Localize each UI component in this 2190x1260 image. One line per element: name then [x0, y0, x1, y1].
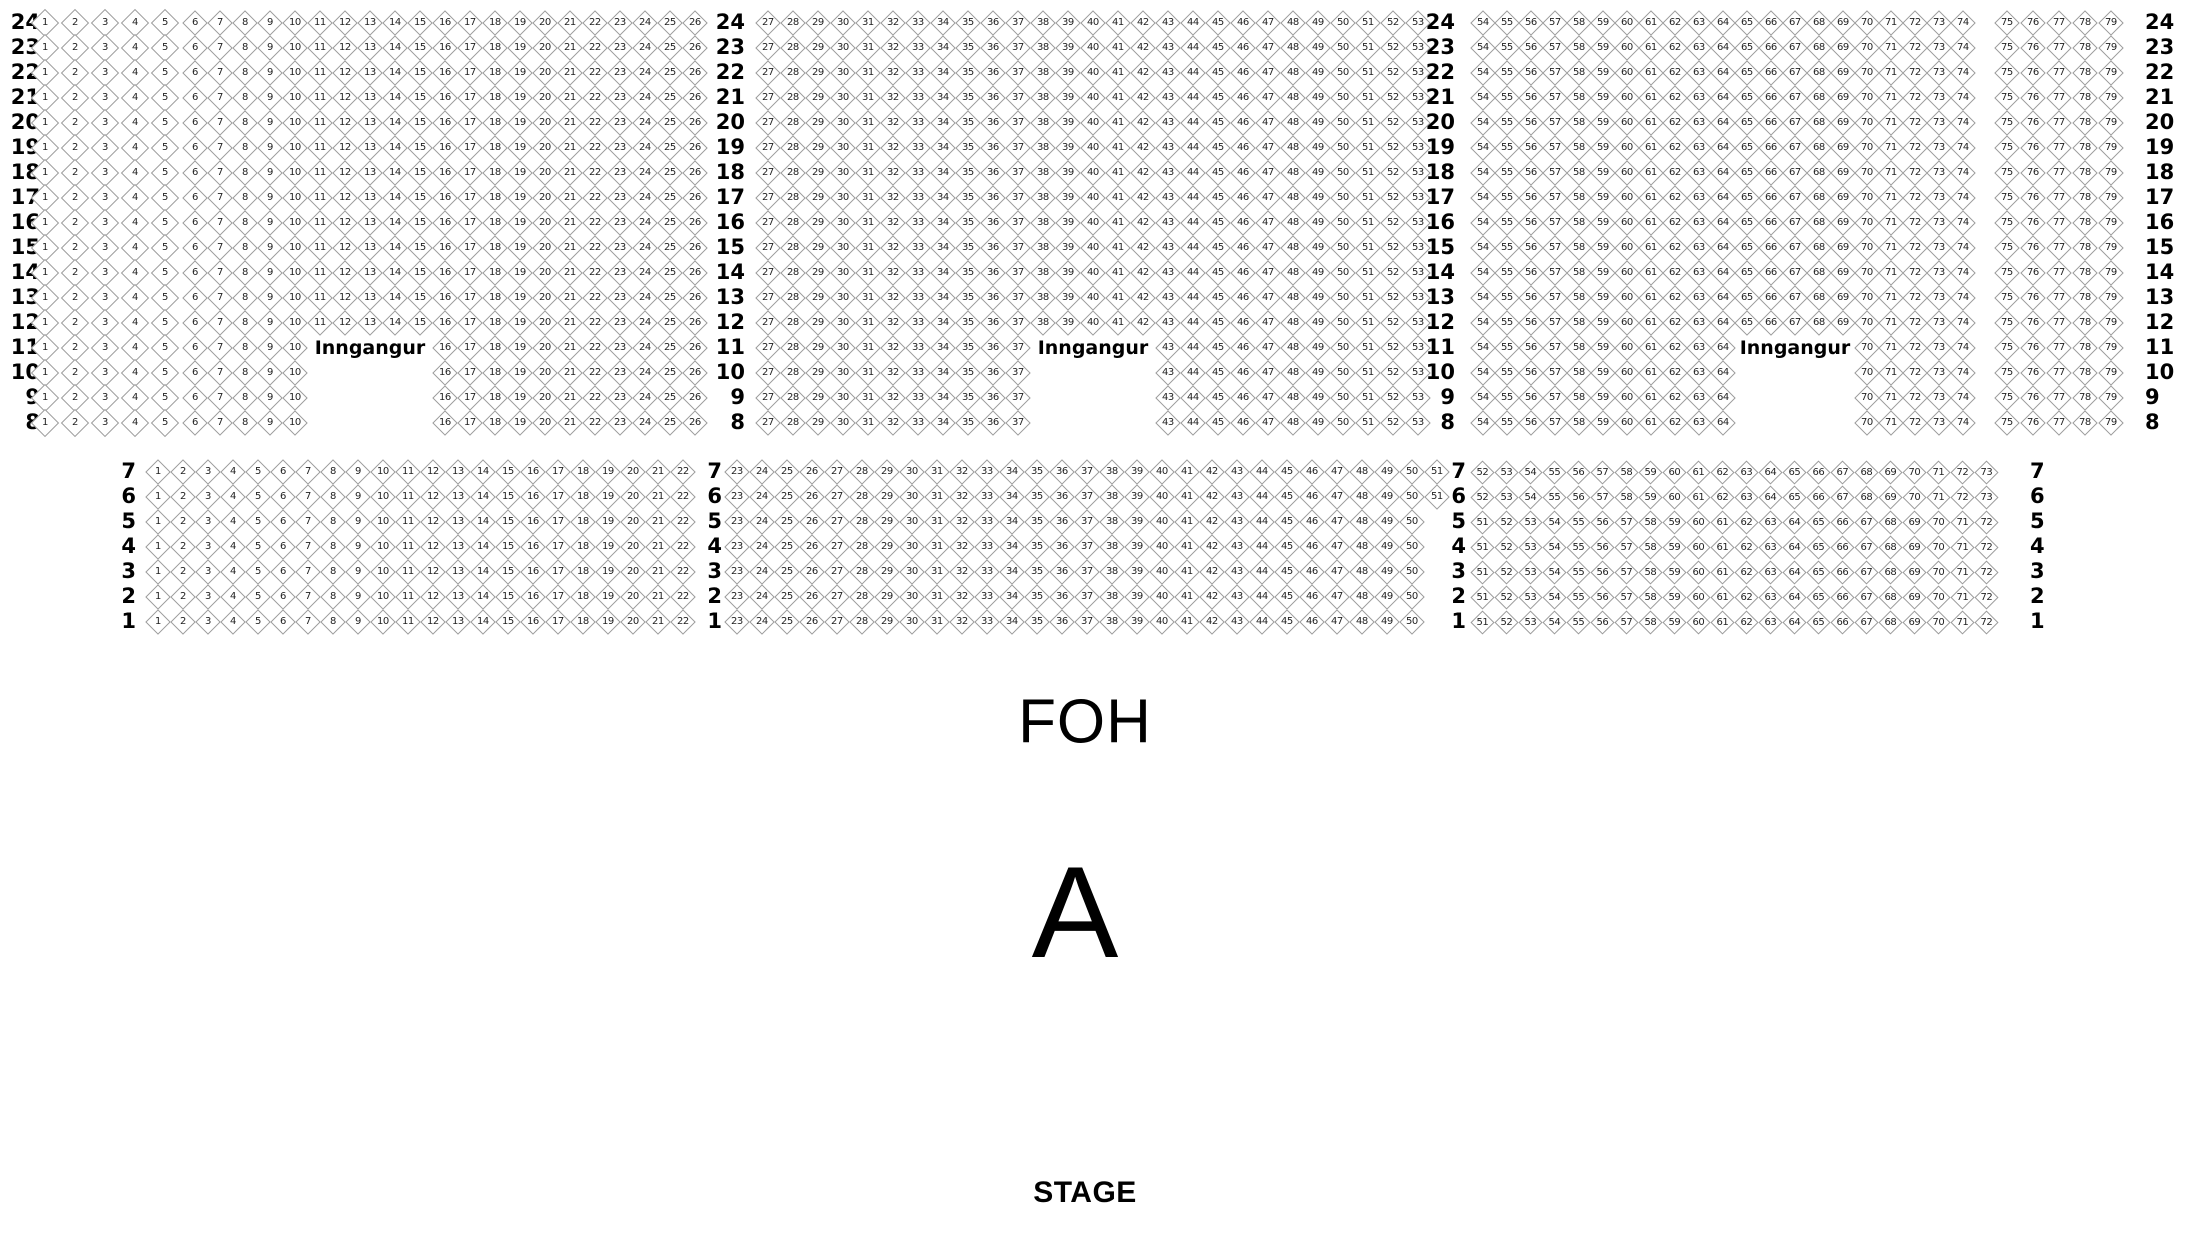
seat[interactable]: 12: [332, 10, 357, 35]
seat[interactable]: 37: [1005, 285, 1030, 310]
seat[interactable]: 40: [1080, 135, 1105, 160]
seat[interactable]: 24: [632, 335, 657, 360]
seat[interactable]: 10: [282, 260, 307, 285]
seat[interactable]: 31: [855, 260, 880, 285]
seat[interactable]: 20: [532, 335, 557, 360]
seat[interactable]: 33: [905, 85, 930, 110]
seat[interactable]: 1: [145, 609, 170, 634]
seat[interactable]: 40: [1149, 534, 1174, 559]
seat[interactable]: 29: [805, 110, 830, 135]
seat[interactable]: 9: [257, 335, 282, 360]
seat[interactable]: 74: [1950, 385, 1975, 410]
seat[interactable]: 38: [1030, 85, 1055, 110]
seat[interactable]: 17: [545, 534, 570, 559]
seat[interactable]: 19: [507, 285, 532, 310]
seat[interactable]: 67: [1830, 460, 1854, 484]
seat[interactable]: 22: [582, 360, 607, 385]
seat[interactable]: 19: [507, 10, 532, 35]
seat[interactable]: 26: [799, 484, 824, 509]
seat[interactable]: 36: [980, 360, 1005, 385]
seat[interactable]: 78: [2072, 10, 2097, 35]
seat[interactable]: 44: [1180, 10, 1205, 35]
seat[interactable]: 42: [1199, 534, 1224, 559]
seat[interactable]: 55: [1494, 210, 1519, 235]
seat[interactable]: 45: [1205, 160, 1230, 185]
seat[interactable]: 56: [1518, 310, 1543, 335]
seat[interactable]: 73: [1926, 210, 1951, 235]
seat[interactable]: 68: [1806, 285, 1831, 310]
seat[interactable]: 16: [520, 609, 545, 634]
seat[interactable]: 52: [1494, 610, 1518, 634]
seat[interactable]: 7: [207, 410, 232, 435]
seat[interactable]: 39: [1055, 160, 1080, 185]
seat[interactable]: 52: [1494, 510, 1518, 534]
seat[interactable]: 76: [2020, 135, 2045, 160]
seat[interactable]: 36: [980, 35, 1005, 60]
seat[interactable]: 69: [1830, 235, 1855, 260]
seat[interactable]: 59: [1590, 310, 1615, 335]
seat[interactable]: 36: [980, 160, 1005, 185]
seat[interactable]: 68: [1806, 310, 1831, 335]
seat[interactable]: 6: [182, 110, 207, 135]
seat[interactable]: 44: [1249, 534, 1274, 559]
seat[interactable]: 3: [91, 409, 119, 437]
seat[interactable]: 36: [980, 335, 1005, 360]
seat[interactable]: 61: [1638, 410, 1663, 435]
seat[interactable]: 54: [1470, 60, 1495, 85]
seat[interactable]: 57: [1542, 185, 1567, 210]
seat[interactable]: 33: [905, 360, 930, 385]
seat[interactable]: 32: [880, 285, 905, 310]
seat[interactable]: 65: [1806, 585, 1830, 609]
seat[interactable]: 33: [974, 559, 999, 584]
seat[interactable]: 6: [182, 60, 207, 85]
seat[interactable]: 50: [1330, 260, 1355, 285]
seat[interactable]: 37: [1005, 10, 1030, 35]
seat[interactable]: 17: [545, 584, 570, 609]
seat[interactable]: 63: [1734, 460, 1758, 484]
seat[interactable]: 48: [1349, 534, 1374, 559]
seat[interactable]: 2: [170, 584, 195, 609]
seat[interactable]: 76: [2020, 310, 2045, 335]
seat[interactable]: 43: [1155, 110, 1180, 135]
seat[interactable]: 75: [1994, 135, 2019, 160]
seat[interactable]: 20: [532, 185, 557, 210]
seat[interactable]: 30: [899, 584, 924, 609]
seat[interactable]: 6: [182, 310, 207, 335]
seat[interactable]: 39: [1124, 509, 1149, 534]
seat[interactable]: 49: [1374, 459, 1399, 484]
seat[interactable]: 14: [470, 584, 495, 609]
seat[interactable]: 70: [1854, 60, 1879, 85]
seat[interactable]: 74: [1950, 160, 1975, 185]
seat[interactable]: 57: [1542, 60, 1567, 85]
seat[interactable]: 16: [432, 235, 457, 260]
seat[interactable]: 33: [905, 60, 930, 85]
seat[interactable]: 26: [799, 534, 824, 559]
seat[interactable]: 39: [1055, 235, 1080, 260]
seat[interactable]: 54: [1470, 160, 1495, 185]
seat[interactable]: 31: [855, 185, 880, 210]
seat[interactable]: 46: [1299, 534, 1324, 559]
seat[interactable]: 69: [1902, 585, 1926, 609]
seat[interactable]: 51: [1470, 585, 1494, 609]
seat[interactable]: 23: [607, 185, 632, 210]
seat[interactable]: 76: [2020, 335, 2045, 360]
seat[interactable]: 63: [1686, 335, 1711, 360]
seat[interactable]: 60: [1614, 210, 1639, 235]
seat[interactable]: 21: [557, 110, 582, 135]
seat[interactable]: 16: [432, 35, 457, 60]
seat[interactable]: 39: [1055, 285, 1080, 310]
seat[interactable]: 59: [1590, 360, 1615, 385]
seat[interactable]: 10: [282, 160, 307, 185]
seat[interactable]: 27: [755, 35, 780, 60]
seat[interactable]: 34: [999, 459, 1024, 484]
seat[interactable]: 46: [1230, 35, 1255, 60]
seat[interactable]: 57: [1614, 560, 1638, 584]
seat[interactable]: 13: [445, 484, 470, 509]
seat[interactable]: 71: [1878, 360, 1903, 385]
seat[interactable]: 68: [1806, 10, 1831, 35]
seat[interactable]: 36: [1049, 509, 1074, 534]
seat[interactable]: 12: [332, 60, 357, 85]
seat[interactable]: 13: [357, 185, 382, 210]
seat[interactable]: 65: [1806, 560, 1830, 584]
seat[interactable]: 51: [1355, 35, 1380, 60]
seat[interactable]: 61: [1686, 485, 1710, 509]
seat[interactable]: 43: [1155, 410, 1180, 435]
seat[interactable]: 8: [320, 459, 345, 484]
seat[interactable]: 70: [1854, 185, 1879, 210]
seat[interactable]: 72: [1950, 485, 1974, 509]
seat[interactable]: 9: [257, 285, 282, 310]
seat[interactable]: 19: [507, 135, 532, 160]
seat[interactable]: 22: [582, 235, 607, 260]
seat[interactable]: 67: [1830, 485, 1854, 509]
seat[interactable]: 72: [1974, 535, 1998, 559]
seat[interactable]: 29: [805, 60, 830, 85]
seat[interactable]: 43: [1155, 10, 1180, 35]
seat[interactable]: 37: [1005, 110, 1030, 135]
seat[interactable]: 17: [457, 110, 482, 135]
seat[interactable]: 32: [880, 360, 905, 385]
seat[interactable]: 24: [632, 60, 657, 85]
seat[interactable]: 24: [749, 559, 774, 584]
seat[interactable]: 60: [1686, 560, 1710, 584]
seat[interactable]: 61: [1638, 135, 1663, 160]
seat[interactable]: 48: [1349, 609, 1374, 634]
seat[interactable]: 33: [905, 35, 930, 60]
seat[interactable]: 30: [830, 310, 855, 335]
seat[interactable]: 15: [407, 185, 432, 210]
seat[interactable]: 40: [1080, 10, 1105, 35]
seat[interactable]: 56: [1518, 210, 1543, 235]
seat[interactable]: 77: [2046, 35, 2071, 60]
seat[interactable]: 64: [1782, 535, 1806, 559]
seat[interactable]: 20: [620, 509, 645, 534]
seat[interactable]: 73: [1926, 110, 1951, 135]
seat[interactable]: 43: [1155, 385, 1180, 410]
seat[interactable]: 32: [880, 310, 905, 335]
seat[interactable]: 35: [955, 285, 980, 310]
seat[interactable]: 37: [1005, 160, 1030, 185]
seat[interactable]: 41: [1105, 260, 1130, 285]
seat[interactable]: 68: [1878, 560, 1902, 584]
seat[interactable]: 24: [632, 85, 657, 110]
seat[interactable]: 50: [1330, 85, 1355, 110]
seat[interactable]: 16: [432, 335, 457, 360]
seat[interactable]: 48: [1280, 110, 1305, 135]
seat[interactable]: 76: [2020, 235, 2045, 260]
seat[interactable]: 44: [1249, 584, 1274, 609]
seat[interactable]: 62: [1710, 460, 1734, 484]
seat[interactable]: 16: [520, 459, 545, 484]
seat[interactable]: 17: [457, 410, 482, 435]
seat[interactable]: 66: [1758, 310, 1783, 335]
seat[interactable]: 45: [1205, 235, 1230, 260]
seat[interactable]: 51: [1355, 410, 1380, 435]
seat[interactable]: 11: [395, 584, 420, 609]
seat[interactable]: 11: [307, 60, 332, 85]
seat[interactable]: 32: [880, 260, 905, 285]
seat[interactable]: 79: [2098, 360, 2123, 385]
seat[interactable]: 25: [657, 60, 682, 85]
seat[interactable]: 56: [1518, 360, 1543, 385]
seat[interactable]: 12: [420, 584, 445, 609]
seat[interactable]: 75: [1994, 110, 2019, 135]
seat[interactable]: 8: [320, 609, 345, 634]
seat[interactable]: 62: [1734, 560, 1758, 584]
seat[interactable]: 59: [1590, 135, 1615, 160]
seat[interactable]: 8: [232, 85, 257, 110]
seat[interactable]: 49: [1305, 210, 1330, 235]
seat[interactable]: 27: [755, 285, 780, 310]
seat[interactable]: 24: [632, 185, 657, 210]
seat[interactable]: 18: [482, 235, 507, 260]
seat[interactable]: 44: [1180, 135, 1205, 160]
seat[interactable]: 54: [1470, 210, 1495, 235]
seat[interactable]: 56: [1518, 160, 1543, 185]
seat[interactable]: 24: [632, 135, 657, 160]
seat[interactable]: 23: [724, 559, 749, 584]
seat[interactable]: 50: [1330, 385, 1355, 410]
seat[interactable]: 42: [1199, 559, 1224, 584]
seat[interactable]: 32: [949, 534, 974, 559]
seat[interactable]: 75: [1994, 210, 2019, 235]
seat[interactable]: 34: [930, 260, 955, 285]
seat[interactable]: 23: [607, 160, 632, 185]
seat[interactable]: 45: [1274, 584, 1299, 609]
seat[interactable]: 10: [282, 60, 307, 85]
seat[interactable]: 51: [1355, 210, 1380, 235]
seat[interactable]: 66: [1830, 610, 1854, 634]
seat[interactable]: 32: [949, 459, 974, 484]
seat[interactable]: 29: [805, 35, 830, 60]
seat[interactable]: 31: [855, 310, 880, 335]
seat[interactable]: 57: [1542, 360, 1567, 385]
seat[interactable]: 46: [1230, 410, 1255, 435]
seat[interactable]: 44: [1180, 185, 1205, 210]
seat[interactable]: 66: [1830, 510, 1854, 534]
seat[interactable]: 27: [824, 559, 849, 584]
seat[interactable]: 29: [805, 135, 830, 160]
seat[interactable]: 26: [799, 584, 824, 609]
seat[interactable]: 45: [1205, 410, 1230, 435]
seat[interactable]: 75: [1994, 360, 2019, 385]
seat[interactable]: 17: [457, 85, 482, 110]
seat[interactable]: 75: [1994, 10, 2019, 35]
seat[interactable]: 20: [532, 110, 557, 135]
seat[interactable]: 54: [1518, 485, 1542, 509]
seat[interactable]: 51: [1355, 285, 1380, 310]
seat[interactable]: 72: [1902, 135, 1927, 160]
seat[interactable]: 30: [830, 410, 855, 435]
seat[interactable]: 61: [1638, 35, 1663, 60]
seat[interactable]: 12: [420, 509, 445, 534]
seat[interactable]: 32: [880, 385, 905, 410]
seat[interactable]: 30: [830, 160, 855, 185]
seat[interactable]: 21: [557, 410, 582, 435]
seat[interactable]: 40: [1080, 185, 1105, 210]
seat[interactable]: 20: [532, 35, 557, 60]
seat[interactable]: 73: [1926, 185, 1951, 210]
seat[interactable]: 67: [1854, 560, 1878, 584]
seat[interactable]: 43: [1155, 210, 1180, 235]
seat[interactable]: 31: [855, 210, 880, 235]
seat[interactable]: 76: [2020, 10, 2045, 35]
seat[interactable]: 43: [1224, 484, 1249, 509]
seat[interactable]: 77: [2046, 85, 2071, 110]
seat[interactable]: 43: [1155, 35, 1180, 60]
seat[interactable]: 59: [1590, 210, 1615, 235]
seat[interactable]: 62: [1734, 610, 1758, 634]
seat[interactable]: 70: [1854, 35, 1879, 60]
seat[interactable]: 66: [1758, 60, 1783, 85]
seat[interactable]: 64: [1710, 235, 1735, 260]
seat[interactable]: 22: [582, 385, 607, 410]
seat[interactable]: 15: [407, 260, 432, 285]
seat[interactable]: 27: [824, 484, 849, 509]
seat[interactable]: 79: [2098, 185, 2123, 210]
seat[interactable]: 68: [1854, 485, 1878, 509]
seat[interactable]: 3: [195, 534, 220, 559]
seat[interactable]: 9: [257, 110, 282, 135]
seat[interactable]: 15: [495, 559, 520, 584]
seat[interactable]: 46: [1230, 385, 1255, 410]
seat[interactable]: 35: [955, 385, 980, 410]
seat[interactable]: 65: [1734, 260, 1759, 285]
seat[interactable]: 28: [849, 484, 874, 509]
seat[interactable]: 55: [1494, 60, 1519, 85]
seat[interactable]: 70: [1854, 110, 1879, 135]
seat[interactable]: 71: [1950, 585, 1974, 609]
seat[interactable]: 64: [1710, 185, 1735, 210]
seat[interactable]: 63: [1686, 210, 1711, 235]
seat[interactable]: 19: [507, 110, 532, 135]
seat[interactable]: 36: [1049, 609, 1074, 634]
seat[interactable]: 37: [1005, 85, 1030, 110]
seat[interactable]: 32: [880, 210, 905, 235]
seat[interactable]: 67: [1854, 535, 1878, 559]
seat[interactable]: 36: [980, 235, 1005, 260]
seat[interactable]: 62: [1662, 160, 1687, 185]
seat[interactable]: 25: [657, 410, 682, 435]
seat[interactable]: 5: [245, 559, 270, 584]
seat[interactable]: 40: [1080, 310, 1105, 335]
seat[interactable]: 63: [1758, 560, 1782, 584]
seat[interactable]: 11: [307, 10, 332, 35]
seat[interactable]: 36: [980, 110, 1005, 135]
seat[interactable]: 58: [1566, 35, 1591, 60]
seat[interactable]: 31: [924, 559, 949, 584]
seat[interactable]: 21: [557, 210, 582, 235]
seat[interactable]: 69: [1878, 485, 1902, 509]
seat[interactable]: 27: [824, 534, 849, 559]
seat[interactable]: 51: [1355, 235, 1380, 260]
seat[interactable]: 14: [382, 160, 407, 185]
seat[interactable]: 64: [1710, 285, 1735, 310]
seat[interactable]: 71: [1878, 410, 1903, 435]
seat[interactable]: 56: [1518, 260, 1543, 285]
seat[interactable]: 76: [2020, 260, 2045, 285]
seat[interactable]: 16: [432, 185, 457, 210]
seat[interactable]: 13: [445, 609, 470, 634]
seat[interactable]: 51: [1355, 85, 1380, 110]
seat[interactable]: 44: [1180, 260, 1205, 285]
seat[interactable]: 44: [1180, 160, 1205, 185]
seat[interactable]: 36: [980, 410, 1005, 435]
seat[interactable]: 78: [2072, 110, 2097, 135]
seat[interactable]: 28: [780, 210, 805, 235]
seat[interactable]: 46: [1230, 10, 1255, 35]
seat[interactable]: 35: [955, 410, 980, 435]
seat[interactable]: 9: [257, 210, 282, 235]
seat[interactable]: 34: [930, 35, 955, 60]
seat[interactable]: 43: [1155, 60, 1180, 85]
seat[interactable]: 38: [1030, 160, 1055, 185]
seat[interactable]: 29: [805, 185, 830, 210]
seat[interactable]: 78: [2072, 235, 2097, 260]
seat[interactable]: 32: [880, 60, 905, 85]
seat[interactable]: 51: [1470, 610, 1494, 634]
seat[interactable]: 70: [1926, 585, 1950, 609]
seat[interactable]: 23: [724, 459, 749, 484]
seat[interactable]: 2: [170, 459, 195, 484]
seat[interactable]: 71: [1878, 60, 1903, 85]
seat[interactable]: 58: [1566, 185, 1591, 210]
seat[interactable]: 29: [805, 235, 830, 260]
seat[interactable]: 44: [1249, 509, 1274, 534]
seat[interactable]: 35: [1024, 459, 1049, 484]
seat[interactable]: 32: [880, 35, 905, 60]
seat[interactable]: 49: [1305, 135, 1330, 160]
seat[interactable]: 19: [507, 360, 532, 385]
seat[interactable]: 57: [1614, 510, 1638, 534]
seat[interactable]: 55: [1494, 360, 1519, 385]
seat[interactable]: 48: [1280, 385, 1305, 410]
seat[interactable]: 58: [1566, 260, 1591, 285]
seat[interactable]: 73: [1926, 35, 1951, 60]
seat[interactable]: 58: [1638, 585, 1662, 609]
seat[interactable]: 16: [432, 60, 457, 85]
seat[interactable]: 62: [1662, 260, 1687, 285]
seat[interactable]: 32: [880, 110, 905, 135]
seat[interactable]: 74: [1950, 410, 1975, 435]
seat[interactable]: 1: [145, 509, 170, 534]
seat[interactable]: 64: [1710, 360, 1735, 385]
seat[interactable]: 49: [1305, 85, 1330, 110]
